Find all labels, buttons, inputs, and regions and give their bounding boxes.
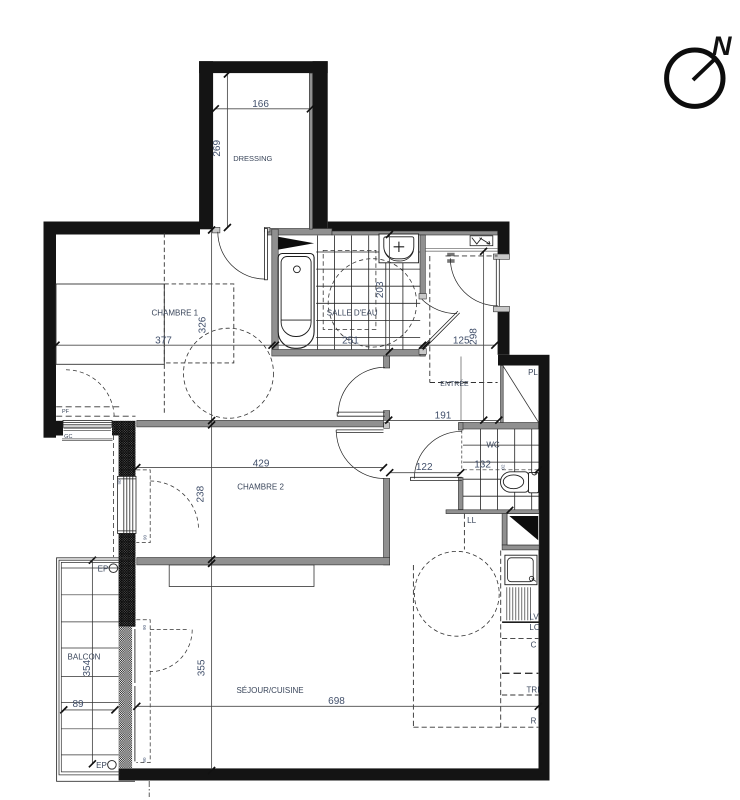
svg-text:TRI: TRI [527,686,540,695]
svg-text:EP: EP [98,564,109,573]
svg-text:298: 298 [469,328,480,345]
svg-text:DRESSING: DRESSING [233,154,272,163]
svg-text:PF: PF [62,409,70,415]
svg-text:WC: WC [486,441,500,450]
svg-text:132: 132 [474,460,491,471]
svg-text:125: 125 [453,336,470,347]
svg-text:326: 326 [198,316,209,333]
svg-text:89: 89 [72,699,84,710]
svg-text:EP: EP [96,761,107,770]
svg-text:90: 90 [142,625,147,631]
svg-text:R: R [531,717,537,726]
svg-text:251: 251 [342,336,359,347]
svg-text:PL: PL [528,368,538,377]
svg-text:CHAMBRE 2: CHAMBRE 2 [237,482,284,491]
svg-text:429: 429 [253,459,270,470]
svg-text:698: 698 [328,696,345,707]
svg-text:SÉJOUR/CUISINE: SÉJOUR/CUISINE [236,686,303,695]
svg-text:SALLE D'EAU: SALLE D'EAU [327,309,378,318]
svg-text:166: 166 [252,99,269,110]
svg-text:CHAMBRE 1: CHAMBRE 1 [151,309,198,318]
svg-text:LC: LC [529,623,539,632]
svg-text:GC: GC [64,434,72,440]
svg-text:377: 377 [155,336,172,347]
svg-text:ENTRÉE: ENTRÉE [440,379,469,388]
svg-text:90: 90 [117,479,122,485]
svg-text:LL: LL [467,516,476,525]
svg-text:191: 191 [435,410,452,421]
svg-text:238: 238 [195,485,206,502]
svg-text:C: C [531,641,537,650]
svg-text:N: N [712,31,732,61]
svg-text:269: 269 [212,140,223,157]
svg-text:354: 354 [82,659,93,676]
svg-text:90: 90 [143,535,148,541]
svg-text:90: 90 [142,757,147,763]
svg-text:355: 355 [196,659,207,676]
svg-text:02: 02 [501,464,506,470]
svg-text:122: 122 [416,462,433,473]
svg-text:203: 203 [375,281,386,298]
svg-text:LV: LV [529,613,539,622]
